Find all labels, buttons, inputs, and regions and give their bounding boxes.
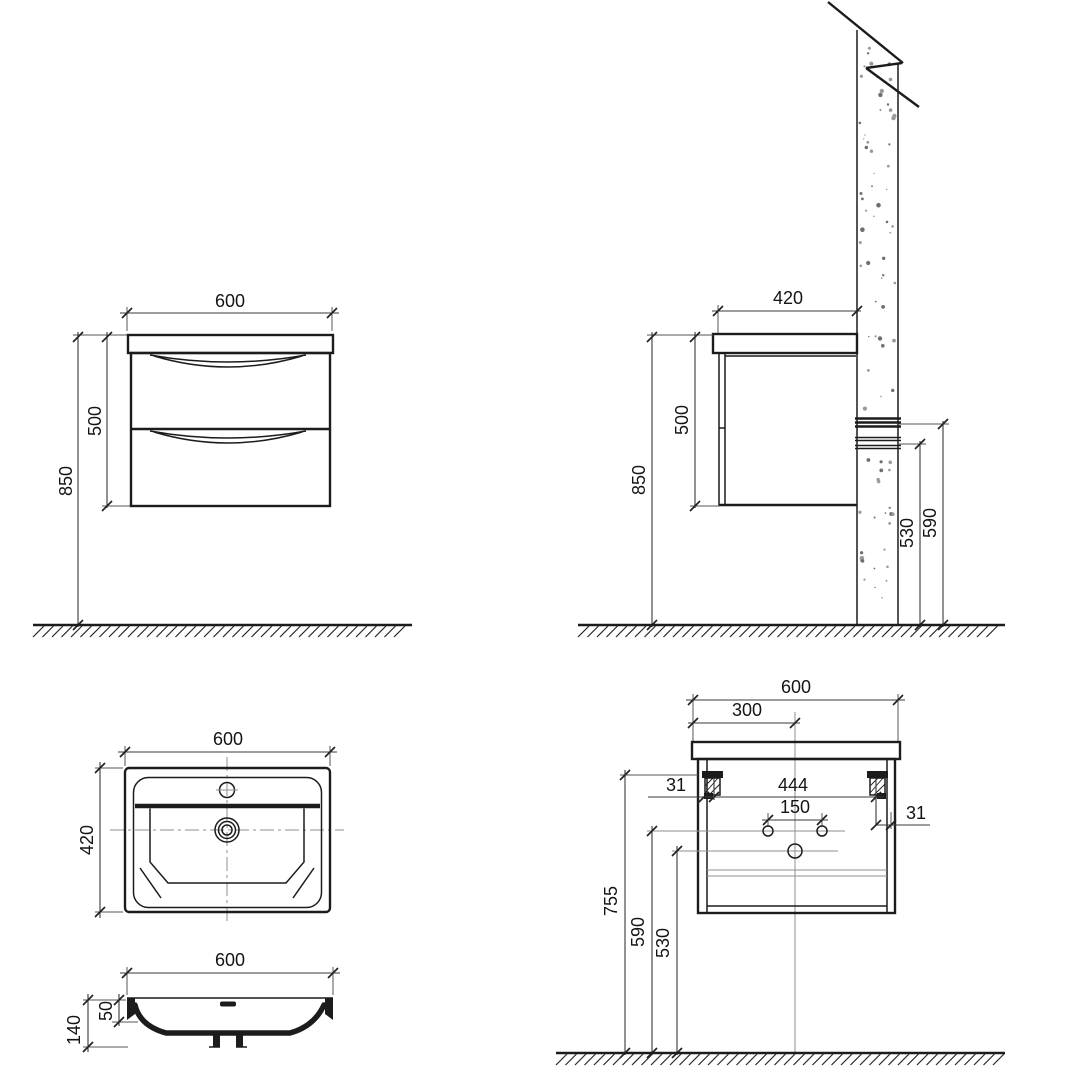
vanity-top-panel-side bbox=[713, 334, 857, 353]
front-cabinet-height-dim-label: 500 bbox=[85, 406, 105, 436]
rear-width-dim-label: 600 bbox=[781, 677, 811, 697]
drain-outlet bbox=[209, 1034, 247, 1047]
drain-hole-plan bbox=[215, 818, 239, 842]
floor-hatch-side bbox=[578, 626, 998, 637]
water-pipe-lines bbox=[855, 419, 901, 449]
side-mount-height-dim-label: 850 bbox=[629, 465, 649, 495]
plan-width-dim-label: 600 bbox=[213, 729, 243, 749]
side-view: 420 500 850 590 530 bbox=[578, 2, 1005, 637]
drawer-handle-recess-upper bbox=[150, 355, 306, 367]
vanity-top-panel-rear bbox=[692, 742, 900, 759]
wall-break-icon bbox=[828, 2, 919, 107]
vanity-installation-drawing: 600 500 850 bbox=[0, 0, 1080, 1080]
rear-center-dim-label: 300 bbox=[732, 700, 762, 720]
basin-plan-view: 600 420 bbox=[77, 729, 344, 922]
rear-view: 600 300 444 31 31 bbox=[556, 677, 1005, 1065]
rear-inset-right-dim-label: 31 bbox=[906, 803, 926, 823]
rear-drain-height-dim-label: 530 bbox=[653, 928, 673, 958]
rear-bracket-height-dim-label: 755 bbox=[601, 886, 621, 916]
vanity-top-panel-front bbox=[128, 335, 333, 353]
mounting-bracket-right bbox=[867, 771, 888, 826]
technical-drawing-page: 600 500 850 bbox=[0, 0, 1080, 1080]
section-rim-dim-label: 50 bbox=[96, 1001, 116, 1021]
rear-bracket-dim-label: 444 bbox=[778, 775, 808, 795]
rear-supply-spacing-dim-label: 150 bbox=[780, 797, 810, 817]
overflow-slot bbox=[220, 1002, 236, 1007]
rear-inset-left-dim-label: 31 bbox=[666, 775, 686, 795]
basin-bowl-profile bbox=[135, 1005, 324, 1033]
concrete-speckles bbox=[858, 47, 896, 599]
basin-rim-right bbox=[325, 998, 333, 1020]
floor-hatch-front bbox=[33, 626, 405, 637]
section-height-dim-label: 140 bbox=[64, 1015, 84, 1045]
basin-section-view: 600 140 50 bbox=[64, 950, 340, 1052]
side-cabinet-height-dim-label: 500 bbox=[672, 405, 692, 435]
section-width-dim-label: 600 bbox=[215, 950, 245, 970]
plan-depth-dim-label: 420 bbox=[77, 825, 97, 855]
rear-supply-height-dim-label: 590 bbox=[628, 917, 648, 947]
side-supply-height-dim-label: 590 bbox=[920, 508, 940, 538]
side-depth-dim-label: 420 bbox=[773, 288, 803, 308]
side-drain-height-dim-label: 530 bbox=[897, 518, 917, 548]
drawer-handle-recess-lower bbox=[150, 431, 306, 443]
front-view: 600 500 850 bbox=[33, 291, 412, 637]
front-width-dim-label: 600 bbox=[215, 291, 245, 311]
front-mount-height-dim-label: 850 bbox=[56, 466, 76, 496]
